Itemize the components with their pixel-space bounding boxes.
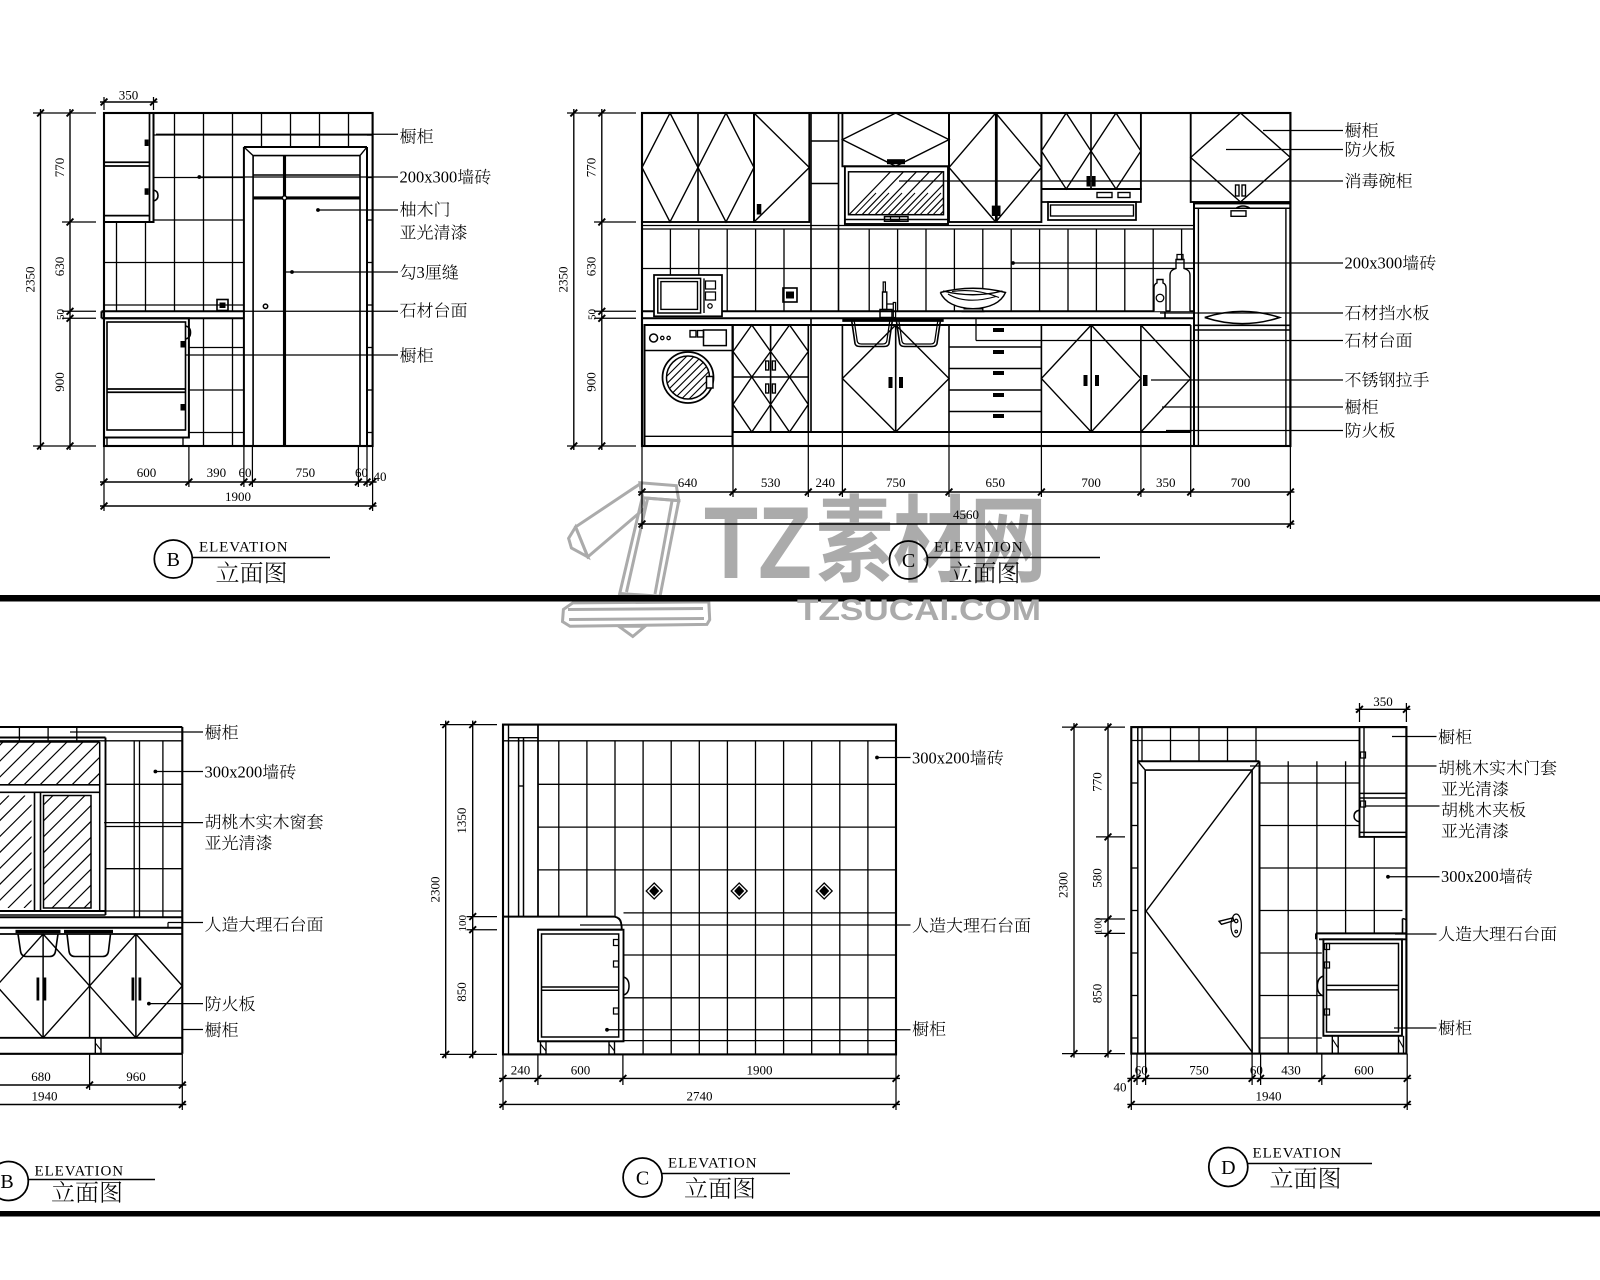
svg-text:1900: 1900 [747, 1062, 773, 1077]
svg-text:700: 700 [1081, 475, 1101, 490]
svg-text:430: 430 [1281, 1062, 1301, 1077]
svg-text:240: 240 [816, 475, 836, 490]
svg-text:240: 240 [511, 1062, 531, 1077]
svg-text:ELEVATION: ELEVATION [199, 540, 288, 556]
svg-text:900: 900 [52, 372, 67, 392]
svg-text:B: B [167, 549, 180, 571]
svg-text:3: 3 [417, 263, 425, 282]
svg-text:770: 770 [52, 158, 67, 178]
svg-text:TZSUCAI.COM: TZSUCAI.COM [797, 594, 1041, 627]
svg-text:850: 850 [1090, 984, 1105, 1004]
svg-text:900: 900 [584, 372, 599, 392]
svg-text:580: 580 [1090, 868, 1105, 888]
svg-text:640: 640 [678, 475, 698, 490]
svg-text:350: 350 [119, 88, 139, 103]
svg-text:300x200: 300x200 [912, 749, 970, 768]
svg-text:630: 630 [52, 257, 67, 277]
svg-text:2350: 2350 [556, 267, 571, 293]
svg-text:50: 50 [587, 309, 599, 321]
svg-text:C: C [636, 1168, 649, 1190]
svg-text:60: 60 [1250, 1062, 1263, 1077]
svg-text:750: 750 [296, 465, 316, 480]
svg-text:60: 60 [1135, 1062, 1148, 1077]
svg-text:600: 600 [137, 465, 157, 480]
svg-text:2300: 2300 [428, 877, 443, 903]
svg-text:40: 40 [1114, 1080, 1127, 1095]
svg-text:750: 750 [886, 475, 906, 490]
svg-text:770: 770 [584, 158, 599, 178]
svg-text:390: 390 [207, 465, 227, 480]
svg-text:680: 680 [31, 1069, 51, 1084]
svg-text:50: 50 [55, 309, 67, 321]
svg-text:100: 100 [1093, 917, 1105, 934]
svg-text:600: 600 [1354, 1062, 1374, 1077]
svg-text:TZ: TZ [704, 486, 812, 600]
svg-text:C: C [902, 550, 915, 572]
svg-text:350: 350 [1156, 475, 1176, 490]
svg-text:750: 750 [1189, 1062, 1209, 1077]
svg-text:1940: 1940 [1256, 1088, 1282, 1103]
svg-text:60: 60 [239, 465, 252, 480]
svg-text:ELEVATION: ELEVATION [35, 1164, 124, 1180]
svg-text:1900: 1900 [225, 489, 251, 504]
svg-text:300x200: 300x200 [205, 763, 263, 782]
svg-text:960: 960 [126, 1069, 146, 1084]
svg-text:530: 530 [761, 475, 781, 490]
svg-text:40: 40 [374, 469, 387, 484]
svg-text:200x300: 200x300 [400, 168, 458, 187]
svg-text:200x300: 200x300 [1345, 254, 1403, 273]
svg-text:700: 700 [1231, 475, 1251, 490]
svg-text:100: 100 [457, 914, 469, 931]
svg-text:850: 850 [454, 982, 469, 1002]
svg-text:300x200: 300x200 [1441, 867, 1499, 886]
svg-text:600: 600 [571, 1062, 591, 1077]
svg-text:ELEVATION: ELEVATION [1253, 1146, 1342, 1162]
svg-text:2350: 2350 [23, 267, 38, 293]
svg-text:D: D [1221, 1157, 1235, 1179]
svg-text:ELEVATION: ELEVATION [668, 1156, 757, 1172]
svg-text:B: B [0, 1171, 13, 1193]
svg-text:650: 650 [985, 475, 1005, 490]
svg-text:350: 350 [1373, 694, 1393, 709]
svg-text:2300: 2300 [1056, 872, 1071, 898]
svg-text:2740: 2740 [687, 1088, 713, 1103]
svg-text:4560: 4560 [953, 507, 979, 522]
svg-text:ELEVATION: ELEVATION [934, 540, 1023, 556]
svg-text:1940: 1940 [32, 1089, 58, 1104]
svg-text:630: 630 [584, 257, 599, 277]
svg-text:60: 60 [355, 465, 368, 480]
svg-text:770: 770 [1090, 772, 1105, 792]
svg-text:1350: 1350 [454, 808, 469, 834]
